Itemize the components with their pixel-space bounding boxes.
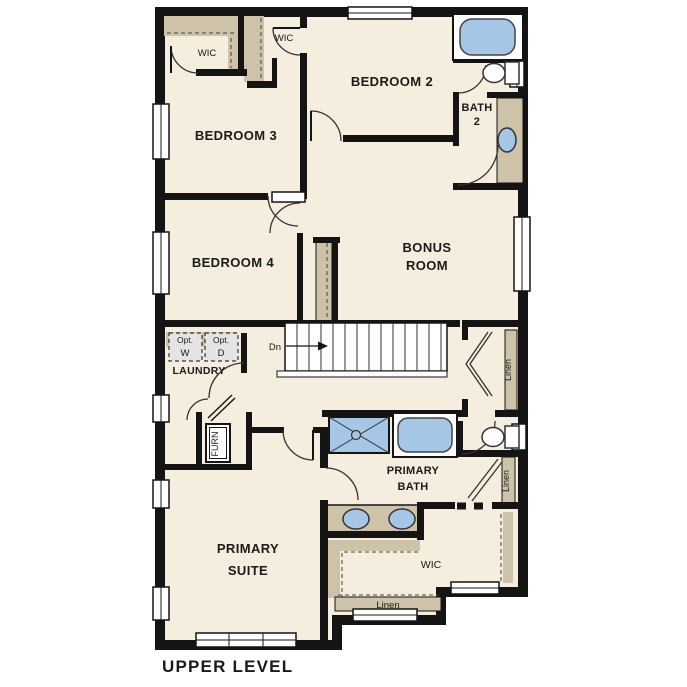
stair-rail <box>277 371 447 377</box>
wic-primary-shelf-right <box>503 512 513 583</box>
linen-bonus-label: Linen <box>503 359 513 381</box>
wall <box>322 531 424 538</box>
wall <box>487 92 523 98</box>
window <box>153 232 169 294</box>
wall <box>343 135 457 142</box>
bonus-room-label: BONUS <box>403 240 452 255</box>
wic-bedroom2-label: WIC <box>275 33 294 44</box>
window <box>153 104 169 159</box>
primary-tub <box>398 418 452 452</box>
wall <box>300 53 307 199</box>
wall <box>241 333 247 373</box>
primary-suite-label: SUITE <box>228 563 268 578</box>
primary-toilet-tank <box>505 426 519 448</box>
wall <box>164 464 252 470</box>
bath2-sink <box>498 128 516 152</box>
wall <box>462 399 468 417</box>
wall <box>313 427 328 433</box>
wall <box>320 433 328 468</box>
wall <box>332 237 338 325</box>
wic3-shelf-side <box>228 36 238 70</box>
wall <box>164 193 268 200</box>
wic-bedroom3-label: WIC <box>198 48 217 59</box>
window <box>348 7 412 19</box>
window <box>153 587 169 620</box>
bedroom4-label: BEDROOM 4 <box>192 255 275 270</box>
window <box>514 217 530 291</box>
wall <box>453 92 459 146</box>
wall <box>297 233 303 327</box>
linen-hall-label: Linen <box>501 470 511 492</box>
plan-title: UPPER LEVEL <box>162 657 293 676</box>
window <box>153 480 169 508</box>
open-door-panel <box>272 192 305 202</box>
furnace-label: FURN <box>210 432 220 457</box>
primary-sink-left <box>343 509 369 529</box>
laundry-label: LAUNDRY <box>172 365 225 377</box>
opt-washer-label: W <box>181 348 190 359</box>
floor-plan-canvas: BEDROOM 3 BEDROOM 2 BEDROOM 4 BONUS ROOM… <box>0 0 687 687</box>
opt-dryer-label: Opt. <box>213 335 229 345</box>
bath2-toilet-tank <box>505 62 519 84</box>
floor-plan-svg: BEDROOM 3 BEDROOM 2 BEDROOM 4 BONUS ROOM… <box>0 0 687 687</box>
primary-bath-label: PRIMARY <box>387 465 440 477</box>
wall <box>462 320 523 327</box>
wall <box>196 412 202 470</box>
wall <box>320 500 328 645</box>
wic-primary-label: WIC <box>421 559 442 571</box>
linen-strip-label: Linen <box>376 600 399 611</box>
primary-toilet-bowl <box>482 428 504 447</box>
stair-chase-shelf <box>316 240 332 325</box>
primary-suite-label: PRIMARY <box>217 541 279 556</box>
wall <box>246 412 252 470</box>
opt-dryer-label: D <box>218 348 225 359</box>
opt-washer-label: Opt. <box>177 335 193 345</box>
bonus-room-label: ROOM <box>406 258 448 273</box>
wall <box>300 12 307 28</box>
wall <box>252 427 284 433</box>
bedroom3-label: BEDROOM 3 <box>195 128 277 143</box>
primary-bath-label: BATH <box>398 481 429 493</box>
stairs-down-label: Dn <box>269 342 281 353</box>
bath2-tub <box>460 19 515 55</box>
bedroom2-label: BEDROOM 2 <box>351 74 433 89</box>
bath2-toilet-bowl <box>483 64 505 83</box>
window <box>153 395 169 422</box>
primary-sink-right <box>389 509 415 529</box>
staircase <box>277 323 447 377</box>
window <box>451 582 499 594</box>
wall <box>462 327 468 340</box>
wic-primary-shelf-top <box>328 540 420 551</box>
wall <box>492 502 523 509</box>
wall <box>272 58 277 83</box>
shower-drain <box>352 431 361 440</box>
window <box>196 633 296 647</box>
wall <box>495 410 523 417</box>
wall <box>238 12 244 72</box>
bath2-label: BATH <box>462 102 493 114</box>
bath2-label: 2 <box>474 116 480 128</box>
